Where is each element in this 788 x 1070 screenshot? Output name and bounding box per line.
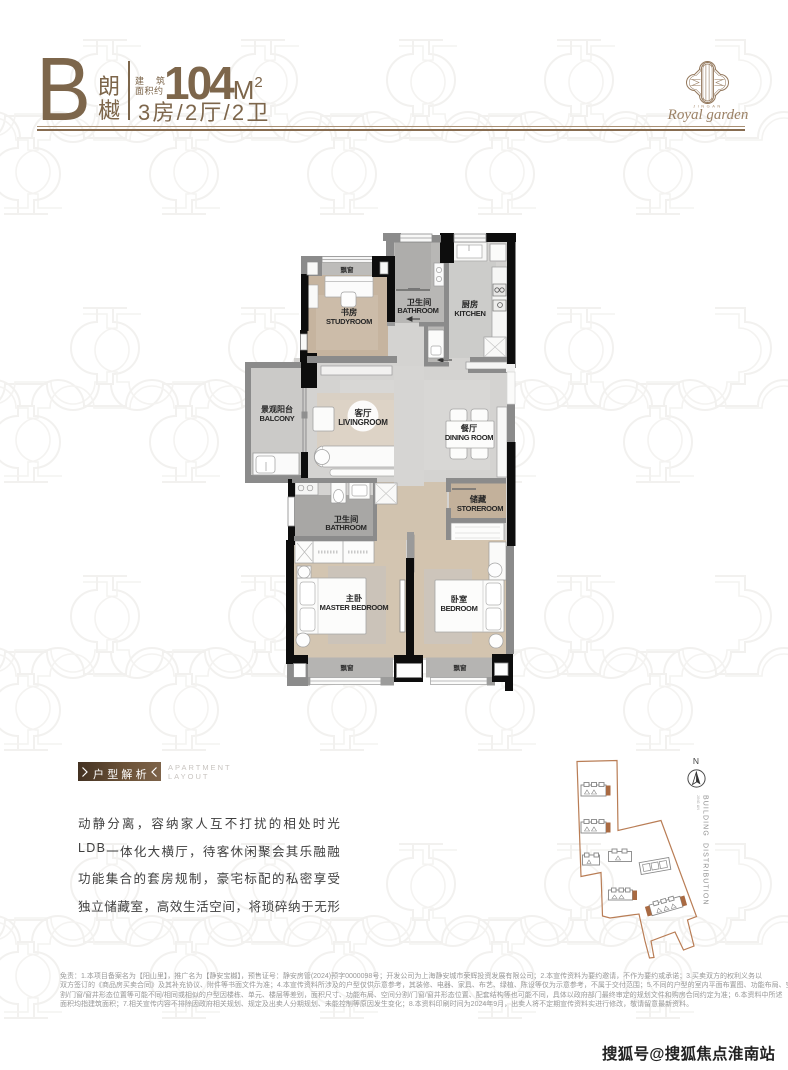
svg-text:STOREROOM: STOREROOM: [457, 504, 503, 513]
svg-text:书房: 书房: [341, 307, 357, 317]
svg-text:STUDYROOM: STUDYROOM: [326, 317, 372, 326]
svg-text:飘窗: 飘窗: [341, 663, 355, 672]
svg-text:BATHROOM: BATHROOM: [325, 523, 366, 532]
svg-text:LIVINGROOM: LIVINGROOM: [338, 418, 388, 427]
svg-text:飘窗: 飘窗: [341, 265, 355, 274]
svg-text:储藏: 储藏: [470, 494, 487, 504]
svg-text:KITCHEN: KITCHEN: [454, 309, 485, 318]
svg-text:BUILDING DISTRIBUTION: BUILDING DISTRIBUTION: [702, 795, 709, 906]
svg-text:景观阳台: 景观阳台: [261, 404, 293, 414]
svg-text:客厅: 客厅: [353, 408, 372, 418]
svg-text:餐厅: 餐厅: [460, 423, 477, 433]
svg-text:卧室: 卧室: [451, 594, 467, 604]
svg-text:厨房: 厨房: [462, 299, 478, 309]
svg-text:BALCONY: BALCONY: [260, 414, 295, 423]
svg-text:BATHROOM: BATHROOM: [397, 306, 438, 315]
svg-text:飘窗: 飘窗: [454, 663, 468, 672]
svg-text:Royal garden: Royal garden: [667, 107, 749, 123]
svg-text:JING AN: JING AN: [696, 795, 700, 810]
svg-text:N: N: [693, 756, 699, 766]
svg-text:主卧: 主卧: [346, 593, 363, 603]
svg-text:DINING ROOM: DINING ROOM: [445, 433, 493, 442]
svg-text:BEDROOM: BEDROOM: [440, 604, 477, 613]
svg-text:MASTER BEDROOM: MASTER BEDROOM: [320, 603, 389, 612]
